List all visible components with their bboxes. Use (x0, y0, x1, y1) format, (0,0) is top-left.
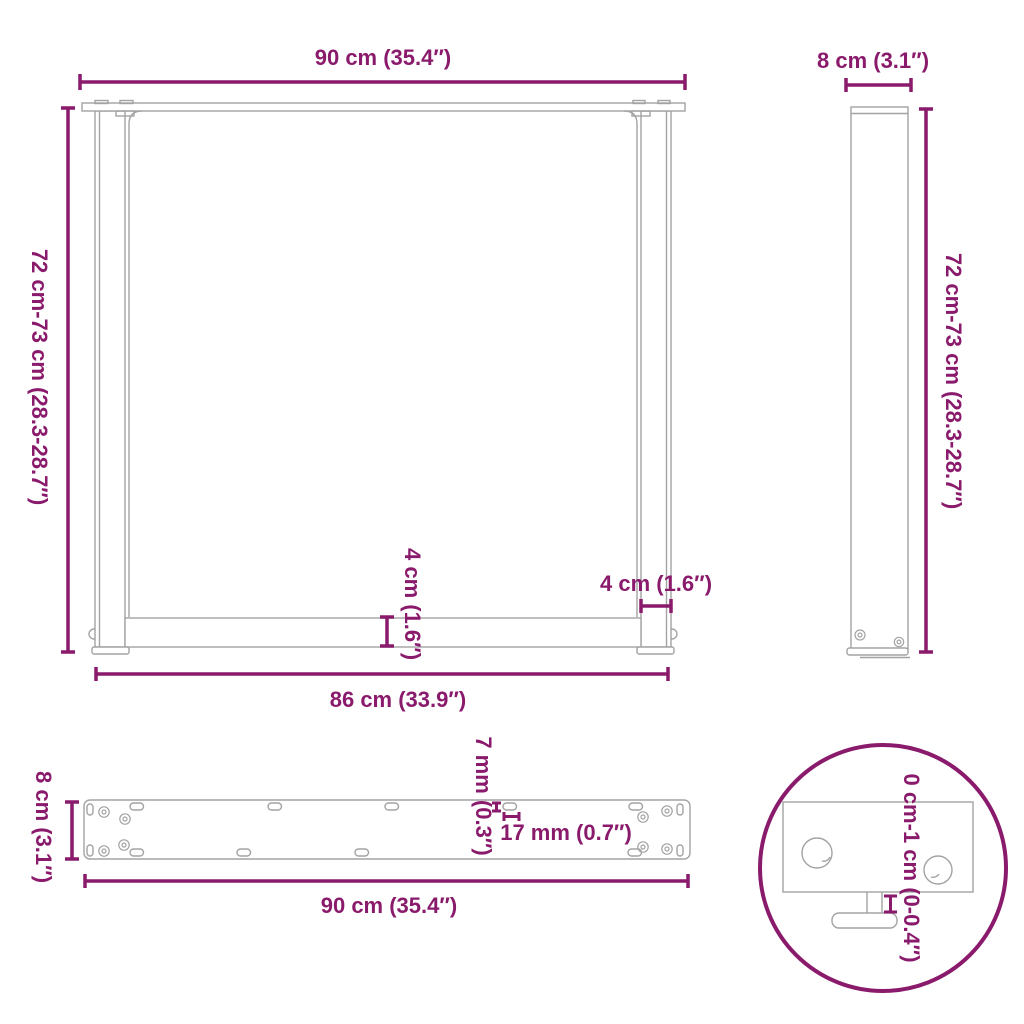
detail-leg-bottom (783, 802, 973, 892)
top-slot-width-label: 17 mm (0.7″) (500, 822, 632, 844)
top-width-label: 90 cm (35.4″) (321, 895, 458, 917)
side-leg-profile (851, 107, 908, 649)
detail-adjustable-height-label: 0 cm-1 cm (0-0.4″) (900, 773, 922, 962)
front-width-bottom-label: 86 cm (33.9″) (330, 689, 467, 711)
plate-slot (95, 101, 108, 104)
detail-screw-notch (931, 874, 939, 877)
side-depth-label: 8 cm (3.1″) (817, 50, 929, 72)
plate-slot (658, 101, 670, 104)
dim-line-top-depth (65, 802, 79, 859)
detail-foot-pad (832, 913, 897, 928)
front-width-top-label: 90 cm (35.4″) (315, 47, 452, 69)
side-view-drawing (847, 107, 910, 658)
front-left-foot (92, 647, 129, 654)
front-left-inner-contour (129, 111, 142, 617)
dim-line-top-width (85, 874, 688, 888)
plate-slot (633, 101, 645, 104)
front-right-foot (637, 647, 674, 654)
side-foot (847, 648, 908, 655)
plate-slot (120, 101, 133, 104)
front-height-label: 72 cm-73 cm (28.3-28.7″) (28, 249, 50, 505)
dim-line-front-width-bottom (96, 667, 668, 681)
front-crossbar-height-label: 4 cm (1.6″) (401, 548, 423, 660)
front-crossbar (125, 618, 641, 647)
dim-line-front-width-top (80, 74, 685, 90)
detail-screw (924, 856, 952, 884)
front-right-inner-contour (624, 111, 637, 617)
dim-line-front-height (61, 108, 75, 652)
detail-content (783, 802, 973, 928)
detail-screw (802, 838, 832, 868)
dim-marker-adjustable-height (884, 896, 897, 912)
detail-circle-border (760, 745, 1006, 991)
top-depth-label: 8 cm (3.1″) (32, 771, 54, 883)
front-view-dimensions (61, 74, 685, 681)
top-slot-height-label: 7 mm (0.3″) (472, 736, 494, 855)
detail-view (760, 745, 1006, 991)
front-view-drawing (82, 101, 685, 655)
front-top-plate (82, 103, 685, 111)
dim-line-side-depth (846, 78, 911, 92)
detail-screw-notch (822, 857, 830, 861)
front-leg-width-label: 4 cm (1.6″) (600, 573, 712, 595)
technical-drawing-svg (0, 0, 1024, 1024)
dimension-diagram: 90 cm (35.4″) 72 cm-73 cm (28.3-28.7″) 4… (0, 0, 1024, 1024)
dim-line-side-height (919, 109, 933, 652)
side-height-label: 72 cm-73 cm (28.3-28.7″) (942, 253, 964, 509)
